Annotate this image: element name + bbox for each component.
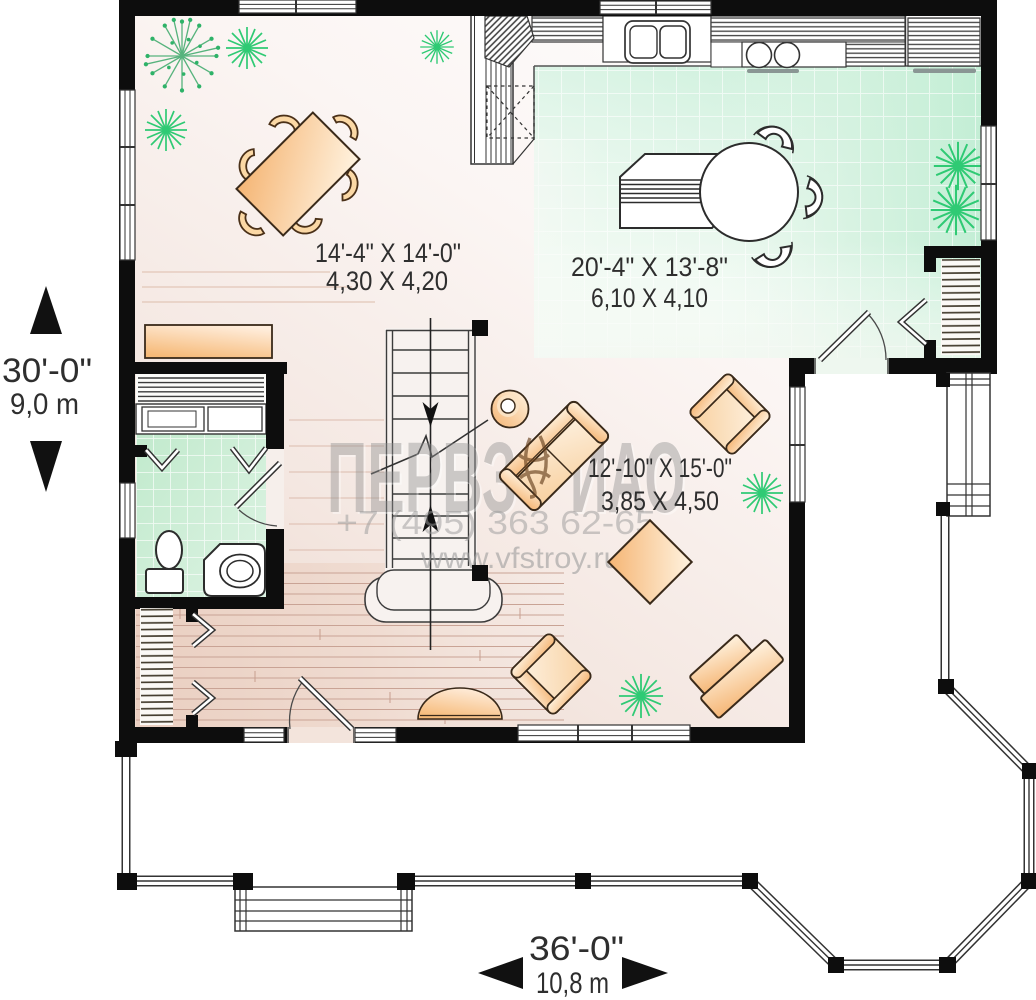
svg-text:12'-10" X 15'-0": 12'-10" X 15'-0": [588, 453, 732, 483]
svg-text:20'-4" X 13'-8": 20'-4" X 13'-8": [571, 252, 728, 282]
svg-text:3,85 X 4,50: 3,85 X 4,50: [601, 486, 719, 516]
svg-text:9,0 m: 9,0 m: [10, 388, 79, 421]
svg-text:6,10 X 4,10: 6,10 X 4,10: [591, 283, 708, 313]
svg-text:4,30 X 4,20: 4,30 X 4,20: [326, 266, 448, 296]
svg-text:36'-0": 36'-0": [529, 930, 624, 968]
svg-text:30'-0": 30'-0": [2, 352, 92, 390]
svg-text:10,8 m: 10,8 m: [536, 967, 609, 1000]
svg-text:www.vfstroy.ru: www.vfstroy.ru: [420, 542, 621, 575]
svg-text:14'-4" X 14'-0": 14'-4" X 14'-0": [315, 238, 461, 268]
